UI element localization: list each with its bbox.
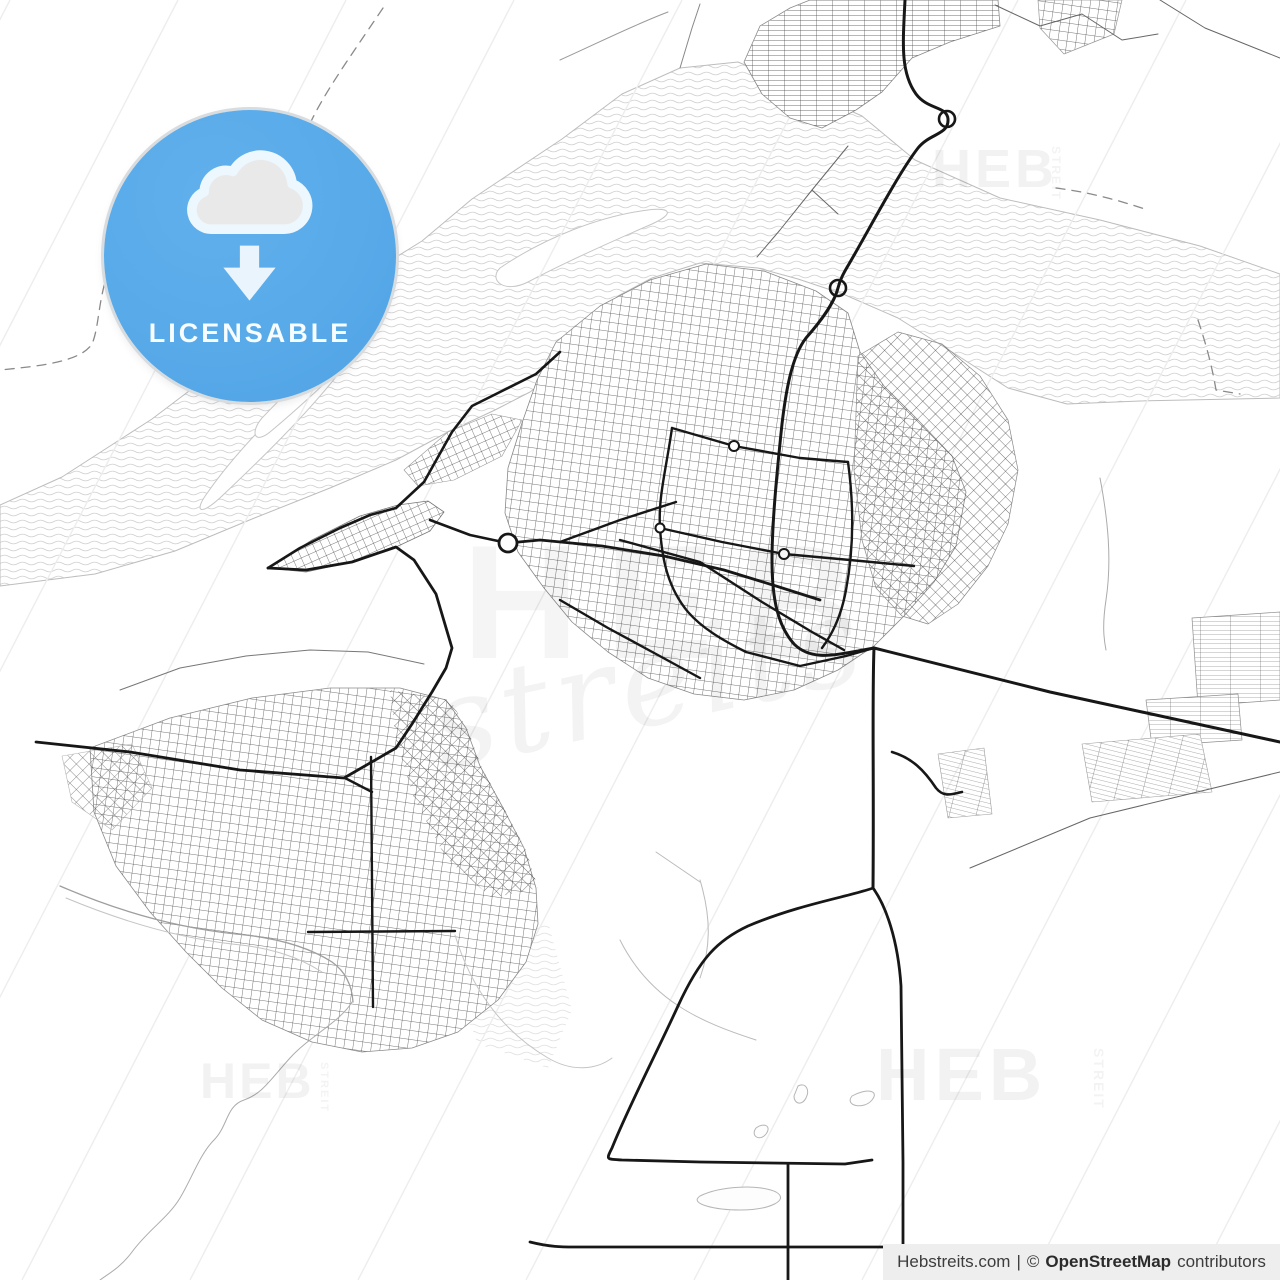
watermark-heb-bottom-right: HEB <box>876 1038 1047 1112</box>
cloud-shape <box>192 155 308 229</box>
copyright-symbol: © <box>1027 1252 1040 1272</box>
contributors-label: contributors <box>1177 1252 1266 1272</box>
watermark-streit-bottom-left: STREIT <box>318 1062 329 1113</box>
download-arrow-icon <box>223 246 275 301</box>
watermark-heb-bottom-left: HEB <box>200 1056 315 1106</box>
watermark-streit-bottom-right: STREIT <box>1092 1048 1106 1110</box>
attribution-separator: | <box>1016 1252 1020 1272</box>
watermark-heb-top-right: HEB <box>932 142 1058 196</box>
map-preview-image: HEB STREIT HEB streits HEB STREIT HEB ST… <box>0 0 1280 1280</box>
watermark-streit-top-right: STREIT <box>1050 146 1062 201</box>
licensable-label: LICENSABLE <box>104 318 396 349</box>
openstreetmap-link[interactable]: OpenStreetMap <box>1045 1252 1171 1272</box>
hebstreits-link[interactable]: Hebstreits.com <box>897 1252 1010 1272</box>
licensable-badge: LICENSABLE <box>104 110 396 402</box>
attribution-bar: Hebstreits.com | © OpenStreetMap contrib… <box>883 1244 1280 1280</box>
cloud-download-icon <box>167 130 332 309</box>
